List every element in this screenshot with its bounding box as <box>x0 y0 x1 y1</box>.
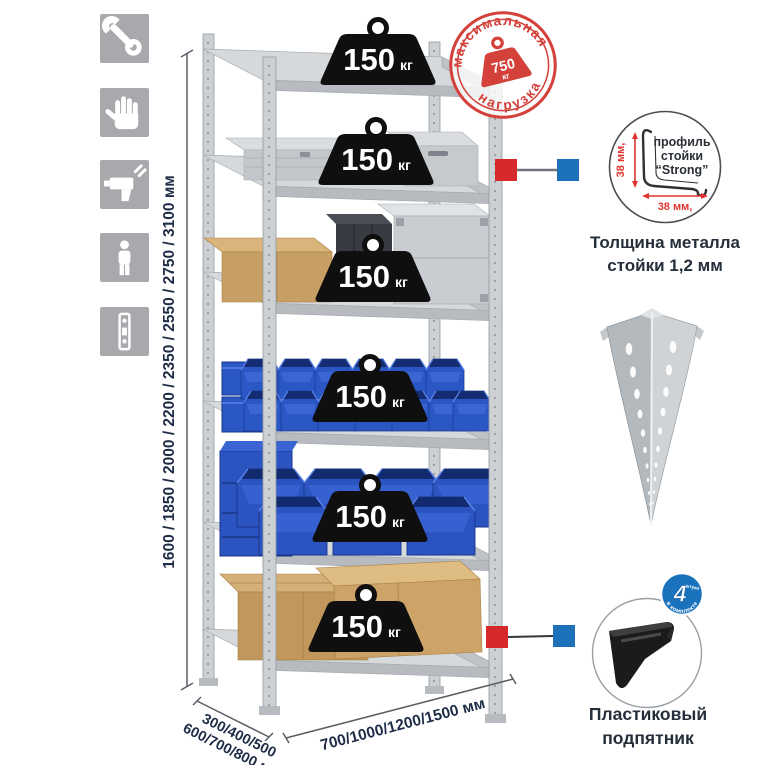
profile-caption: Толщина металла стойки 1,2 мм <box>583 231 747 277</box>
red-marker-bottom <box>486 626 508 648</box>
corner-profile-image <box>600 308 704 525</box>
shelf-weight-2: 150кг <box>319 120 434 186</box>
foot-caption: Пластиковый подпятник <box>563 702 733 750</box>
person-icon <box>100 233 149 282</box>
wrench-icon <box>100 14 149 63</box>
width-dimension-label: 700/1000/1200/1500 мм <box>319 695 487 754</box>
height-dimension-label: 1600 / 1850 / 2000 / 2200 / 2350 / 2550 … <box>161 175 178 569</box>
drill-icon <box>100 160 149 209</box>
svg-text:стойки: стойки <box>661 149 703 163</box>
red-marker-top <box>495 159 517 181</box>
profile-dim-vertical: 38 мм, <box>615 143 627 178</box>
shelving-infographic: 150кг 150кг 150кг 150кг 150кг 150кг 1600… <box>0 0 765 765</box>
badge-count: 4 <box>673 580 687 606</box>
gloves-icon <box>100 88 149 137</box>
svg-text:“Strong”: “Strong” <box>656 163 709 177</box>
blue-marker-top <box>557 159 579 181</box>
shelf-weight-1: 150кг <box>321 20 436 86</box>
storage-bin <box>281 391 319 431</box>
storage-bin <box>453 391 491 431</box>
blue-marker-bottom <box>553 625 575 647</box>
svg-text:профиль: профиль <box>653 135 710 149</box>
included-count-badge: в комплекте 4 штуки <box>659 571 705 617</box>
post-profile-detail: 38 мм, 38 мм, профиль стойки “Strong” <box>608 110 722 224</box>
height-dimension-line <box>181 50 193 690</box>
perforated-profile-icon <box>100 307 149 356</box>
profile-dim-horizontal: 38 мм, <box>658 201 693 213</box>
